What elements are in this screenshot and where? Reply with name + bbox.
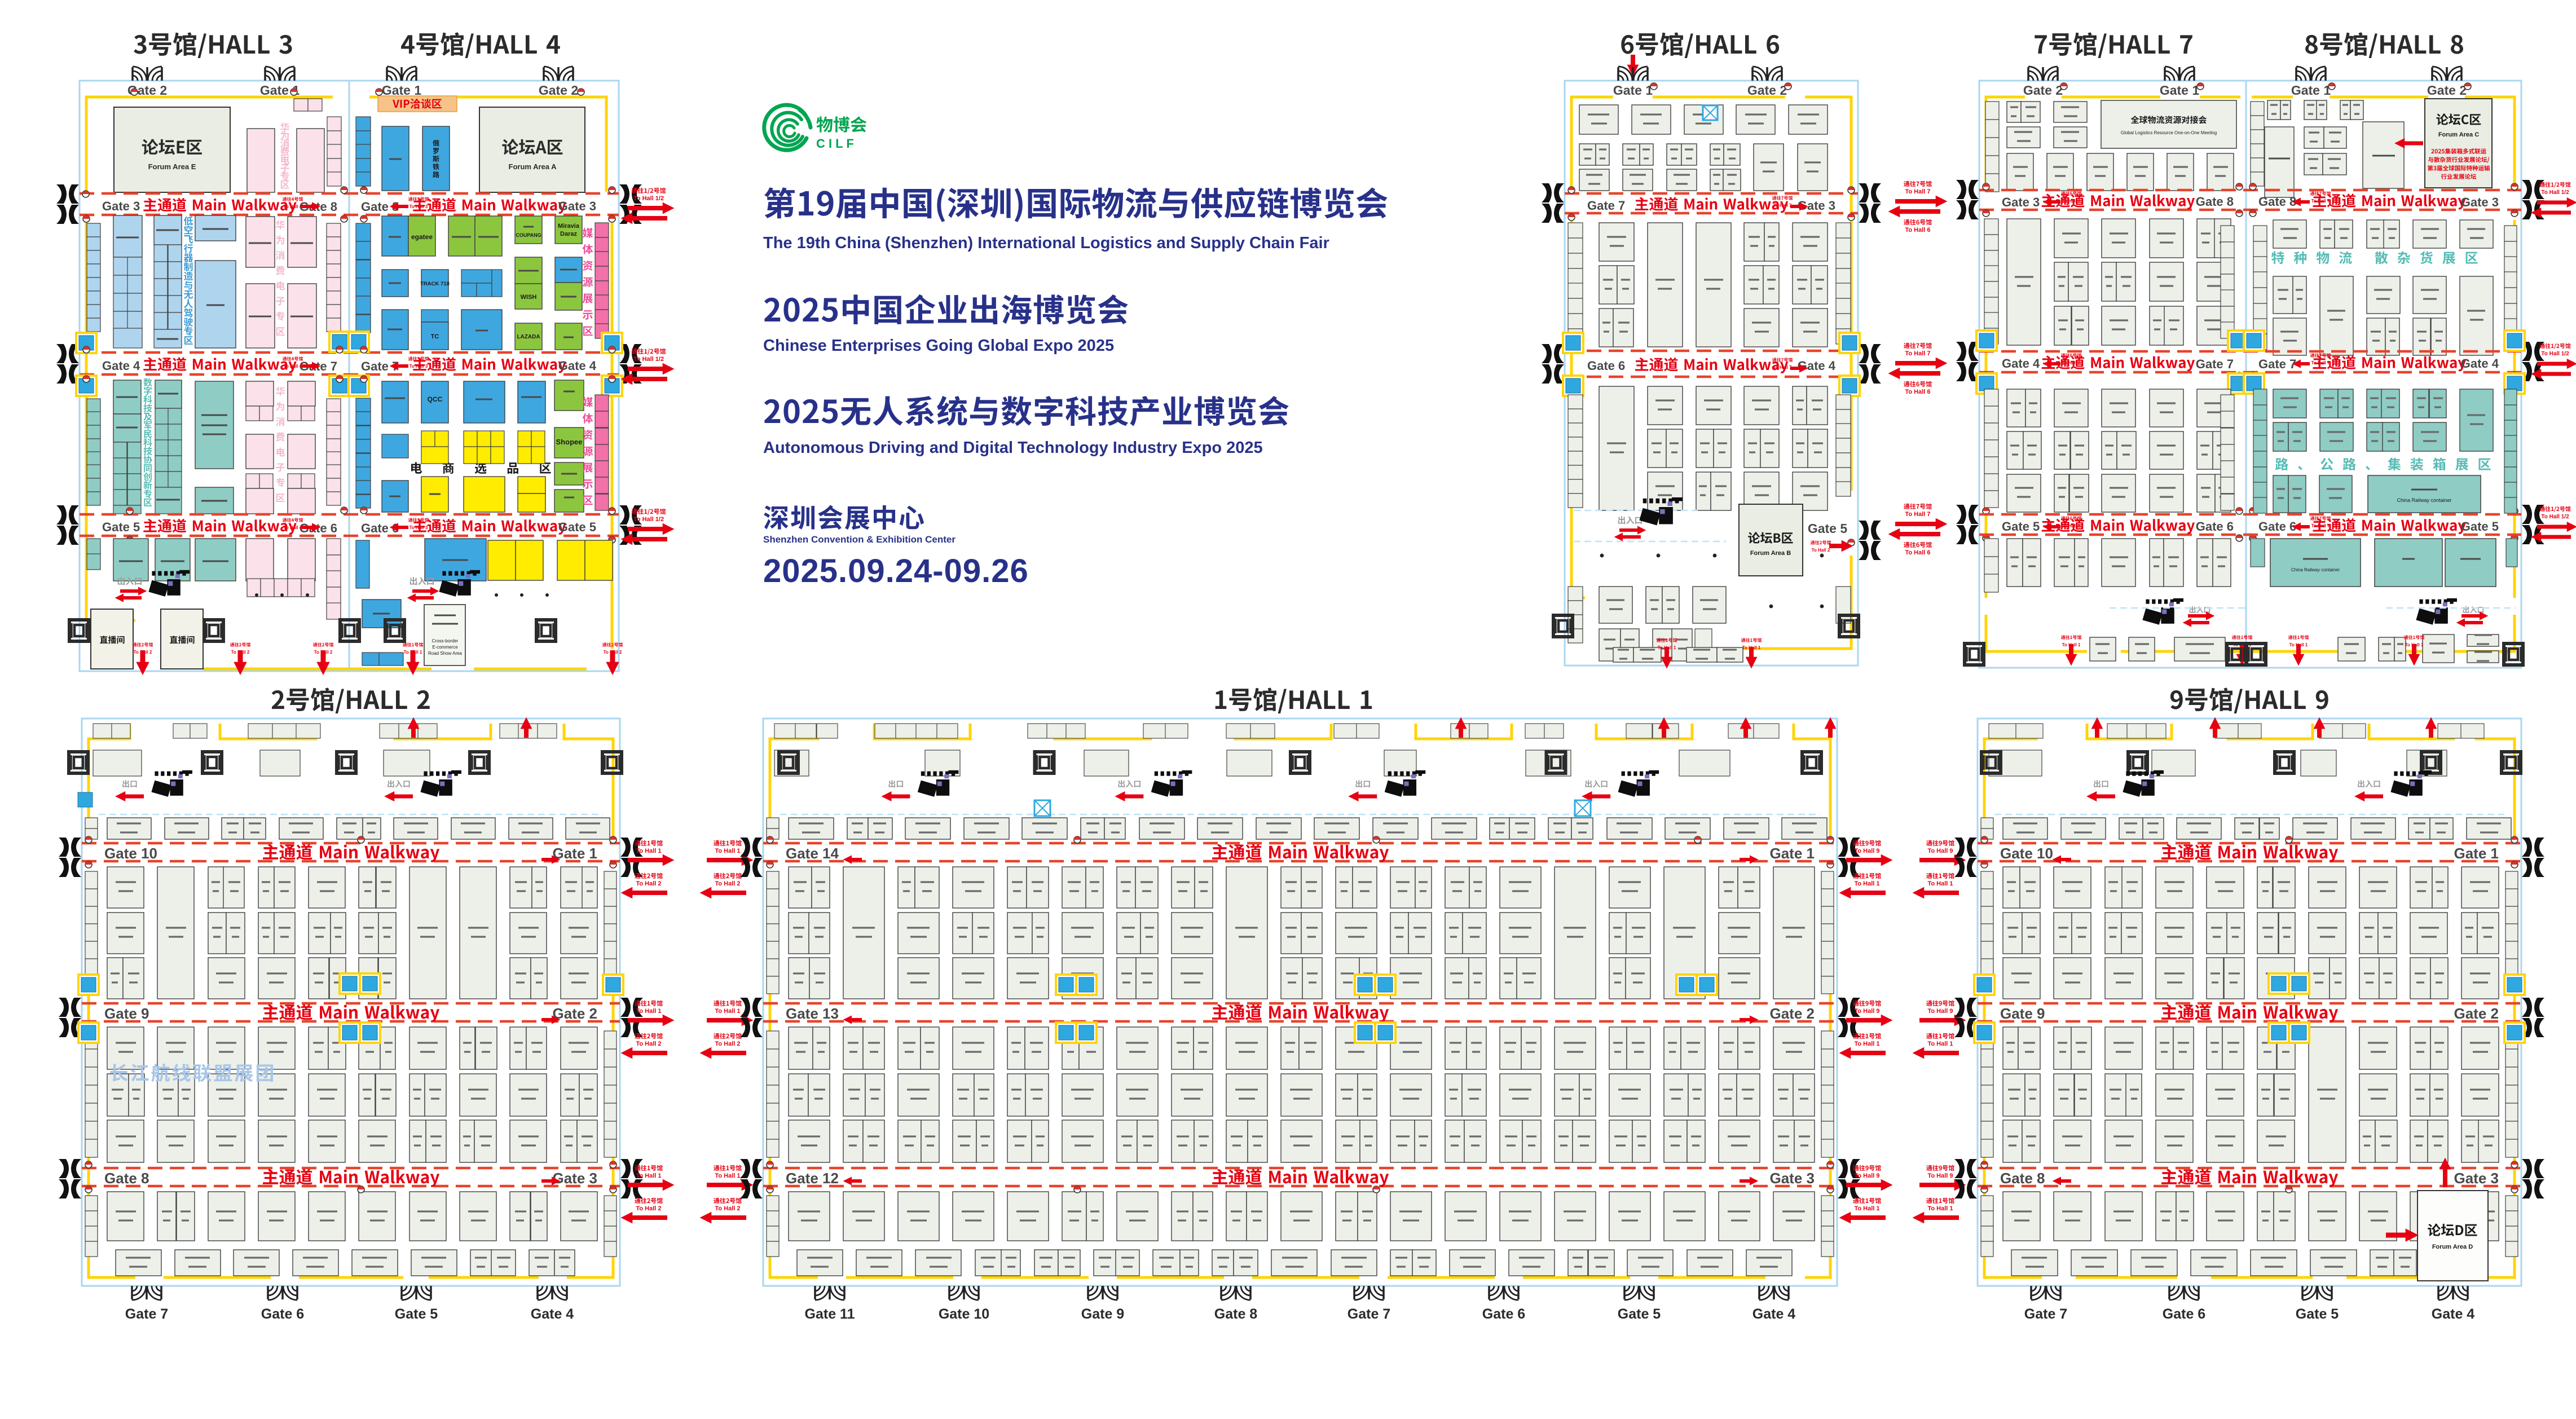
svg-text:To Hall 1/2: To Hall 1/2 [633, 356, 664, 363]
svg-text:Gate 8: Gate 8 [2196, 195, 2234, 209]
svg-text:To Hall 1: To Hall 1 [2289, 642, 2308, 647]
svg-text:C I L F: C I L F [816, 136, 854, 151]
svg-text:Gate 3: Gate 3 [1770, 1170, 1815, 1187]
svg-text:Gate 3: Gate 3 [2454, 1170, 2499, 1187]
svg-text:Gate 5: Gate 5 [102, 520, 140, 534]
svg-text:To Hall 7: To Hall 7 [1905, 350, 1930, 357]
svg-text:WISH: WISH [521, 294, 537, 301]
svg-text:To Hall 9: To Hall 9 [1854, 1008, 1879, 1015]
svg-text:TRACK 718: TRACK 718 [420, 281, 450, 287]
svg-text:Gate 3: Gate 3 [102, 199, 140, 213]
svg-text:Forum Area A: Forum Area A [509, 162, 557, 171]
svg-text:Gate 4: Gate 4 [2432, 1306, 2475, 1322]
svg-text:Gate 8: Gate 8 [1214, 1306, 1258, 1322]
svg-text:Gate 5: Gate 5 [1808, 521, 1848, 536]
svg-text:Gate 6: Gate 6 [361, 521, 399, 535]
svg-text:TC: TC [431, 333, 439, 340]
svg-text:Gate 4: Gate 4 [102, 359, 140, 373]
svg-text:Gate 6: Gate 6 [2163, 1306, 2205, 1322]
svg-text:Gate 2: Gate 2 [553, 1005, 598, 1022]
svg-text:To Hall 7: To Hall 7 [1905, 188, 1930, 195]
svg-text:Gate 13: Gate 13 [786, 1005, 839, 1022]
svg-text:Gate 2: Gate 2 [539, 83, 578, 98]
svg-text:Gate 1: Gate 1 [1770, 845, 1815, 862]
svg-text:Forum Area E: Forum Area E [148, 162, 196, 171]
svg-text:To Hall 1/2: To Hall 1/2 [2541, 190, 2569, 196]
svg-text:Gate 1: Gate 1 [382, 83, 422, 98]
svg-text:Gate 7: Gate 7 [125, 1306, 168, 1322]
svg-text:Gate 2: Gate 2 [2427, 83, 2467, 98]
svg-text:Gate 4: Gate 4 [2002, 356, 2040, 371]
svg-text:Gate 9: Gate 9 [2000, 1005, 2045, 1022]
svg-text:Gate 8: Gate 8 [104, 1170, 149, 1187]
svg-text:Forum Area C: Forum Area C [2438, 131, 2479, 138]
svg-text:To Hall 7: To Hall 7 [2311, 199, 2330, 204]
svg-text:Gate 3: Gate 3 [558, 199, 596, 213]
svg-text:Gate 4: Gate 4 [558, 359, 597, 373]
svg-text:To Hall 2: To Hall 2 [636, 880, 661, 887]
svg-text:China Railway container: China Railway container [2291, 567, 2340, 572]
svg-text:Gate 4: Gate 4 [531, 1306, 574, 1322]
svg-text:To Hall 9: To Hall 9 [1854, 848, 1879, 854]
svg-text:Gate 9: Gate 9 [104, 1005, 149, 1022]
svg-text:To Hall 2: To Hall 2 [231, 650, 250, 655]
svg-text:Shenzhen Convention & Exhibiti: Shenzhen Convention & Exhibition Center [763, 534, 955, 545]
svg-text:Gate 5: Gate 5 [395, 1306, 438, 1322]
svg-text:Gate 1: Gate 1 [553, 845, 598, 862]
svg-text:To Hall 4: To Hall 4 [284, 204, 302, 209]
svg-text:Gate 1: Gate 1 [2454, 845, 2499, 862]
svg-text:Forum Area B: Forum Area B [1750, 550, 1791, 557]
svg-text:Gate 12: Gate 12 [786, 1170, 839, 1187]
svg-text:Gate 6: Gate 6 [2258, 519, 2296, 534]
svg-text:To Hall 4: To Hall 4 [284, 525, 302, 530]
svg-text:To Hall 9: To Hall 9 [1927, 1008, 1953, 1015]
svg-text:Gate 2: Gate 2 [2454, 1005, 2499, 1022]
svg-text:Chinese Enterprises Going Glob: Chinese Enterprises Going Global Expo 20… [763, 337, 1114, 355]
svg-text:To Hall 1/2: To Hall 1/2 [633, 195, 664, 202]
svg-text:Road Show Area: Road Show Area [428, 651, 463, 656]
svg-text:To Hall 1: To Hall 1 [1854, 880, 1879, 887]
svg-text:Miravia: Miravia [558, 223, 580, 230]
svg-text:Gate 3: Gate 3 [1798, 199, 1835, 213]
svg-text:Forum Area D: Forum Area D [2432, 1244, 2473, 1250]
svg-text:To Hall 6: To Hall 6 [1905, 549, 1930, 556]
svg-text:Gate 5: Gate 5 [2296, 1306, 2339, 1322]
svg-text:Gate 7: Gate 7 [1348, 1306, 1390, 1322]
svg-text:QCC: QCC [428, 395, 443, 403]
svg-text:To Hall 9: To Hall 9 [1854, 1173, 1879, 1179]
svg-text:To Hall 2: To Hall 2 [715, 1205, 740, 1212]
svg-text:To Hall 3: To Hall 3 [409, 525, 428, 530]
svg-text:To Hall 1: To Hall 1 [1927, 1205, 1953, 1212]
svg-text:To Hall 1: To Hall 1 [1742, 645, 1761, 650]
svg-text:Gate 11: Gate 11 [805, 1306, 855, 1322]
svg-text:Gate 6: Gate 6 [1482, 1306, 1525, 1322]
svg-text:Gate 9: Gate 9 [1081, 1306, 1124, 1322]
svg-text:To Hall 1/2: To Hall 1/2 [633, 516, 664, 523]
svg-text:To Hall 1: To Hall 1 [636, 1173, 661, 1179]
svg-text:Gate 8: Gate 8 [2000, 1170, 2045, 1187]
svg-text:Gate 8: Gate 8 [361, 200, 399, 214]
svg-text:Autonomous Driving and Digital: Autonomous Driving and Digital Technolog… [763, 439, 1263, 457]
svg-text:To Hall 2: To Hall 2 [314, 650, 333, 655]
svg-text:To Hall 9: To Hall 9 [1927, 848, 1953, 854]
svg-text:Gate 3: Gate 3 [553, 1170, 598, 1187]
svg-text:To Hall 6: To Hall 6 [2062, 523, 2081, 528]
svg-text:To Hall 1: To Hall 1 [1927, 1041, 1953, 1047]
svg-text:Gate 10: Gate 10 [939, 1306, 989, 1322]
svg-text:To Hall 7: To Hall 7 [1773, 365, 1792, 370]
svg-text:Gate 10: Gate 10 [2000, 845, 2053, 862]
svg-text:To Hall 2: To Hall 2 [1812, 548, 1830, 553]
svg-text:To Hall 2: To Hall 2 [134, 650, 152, 655]
svg-text:Gate 7: Gate 7 [1587, 199, 1625, 213]
svg-text:To Hall 1: To Hall 1 [636, 848, 661, 854]
svg-text:To Hall 1: To Hall 1 [1854, 1041, 1879, 1047]
svg-text:Gate 7: Gate 7 [361, 359, 399, 373]
svg-text:Gate 3: Gate 3 [2002, 195, 2040, 209]
svg-text:Gate 1: Gate 1 [2291, 83, 2331, 98]
svg-text:To Hall 6: To Hall 6 [1905, 389, 1930, 395]
svg-text:To Hall 1: To Hall 1 [715, 1008, 740, 1015]
svg-text:Gate 5: Gate 5 [558, 520, 596, 534]
svg-text:COUPANG: COUPANG [516, 232, 541, 238]
svg-text:Shopee: Shopee [556, 438, 583, 446]
svg-text:Gate 3: Gate 3 [2461, 195, 2499, 209]
svg-text:To Hall 1: To Hall 1 [1658, 645, 1676, 650]
svg-text:To Hall 1: To Hall 1 [636, 1008, 661, 1015]
svg-text:Gate 4: Gate 4 [2461, 356, 2499, 371]
svg-text:E-commerce: E-commerce [432, 645, 458, 650]
svg-text:To Hall 9: To Hall 9 [1927, 1173, 1953, 1179]
svg-text:Gate 2: Gate 2 [1747, 83, 1787, 98]
svg-text:To Hall 6: To Hall 6 [2062, 199, 2081, 204]
svg-text:Gate 1: Gate 1 [1613, 83, 1653, 98]
svg-text:egatee: egatee [411, 233, 433, 241]
svg-text:Gate 2: Gate 2 [1770, 1005, 1815, 1022]
svg-text:To Hall 7: To Hall 7 [2311, 523, 2330, 528]
svg-text:To Hall 2: To Hall 2 [604, 650, 622, 655]
svg-text:To Hall 1: To Hall 1 [2405, 642, 2424, 647]
svg-text:To Hall 1: To Hall 1 [1854, 1205, 1879, 1212]
svg-text:Gate 4: Gate 4 [1752, 1306, 1796, 1322]
svg-text:To Hall 2: To Hall 2 [636, 1205, 661, 1212]
svg-text:Gate 7: Gate 7 [2024, 1306, 2067, 1322]
svg-text:LAZADA: LAZADA [517, 334, 540, 340]
svg-text:To Hall 3: To Hall 3 [409, 204, 428, 209]
svg-text:To Hall 1: To Hall 1 [404, 650, 422, 655]
svg-text:China Railway container: China Railway container [2397, 497, 2451, 503]
svg-text:Gate 6: Gate 6 [2196, 519, 2234, 534]
svg-text:To Hall 1: To Hall 1 [715, 1173, 740, 1179]
svg-text:Gate 7: Gate 7 [2258, 357, 2296, 371]
svg-text:To Hall 1: To Hall 1 [715, 848, 740, 854]
svg-text:To Hall 2: To Hall 2 [715, 880, 740, 887]
svg-text:Global Logistics Resource One-: Global Logistics Resource One-on-One Mee… [2121, 130, 2217, 135]
svg-text:Gate 1: Gate 1 [2160, 83, 2200, 98]
svg-text:Gate 5: Gate 5 [1618, 1306, 1661, 1322]
svg-text:Gate 5: Gate 5 [2461, 519, 2499, 534]
svg-text:To Hall 3: To Hall 3 [409, 364, 428, 369]
svg-text:To Hall 6: To Hall 6 [1905, 227, 1930, 233]
svg-text:To Hall 7: To Hall 7 [2311, 360, 2330, 365]
svg-text:Daraz: Daraz [560, 231, 577, 237]
svg-text:Gate 10: Gate 10 [104, 845, 157, 862]
svg-text:To Hall 7: To Hall 7 [1905, 511, 1930, 518]
svg-text:The 19th China (Shenzhen) Inte: The 19th China (Shenzhen) International … [763, 234, 1329, 252]
svg-text:To Hall 1: To Hall 1 [2062, 642, 2081, 647]
svg-text:Gate 2: Gate 2 [2023, 83, 2063, 98]
svg-text:Gate 6: Gate 6 [261, 1306, 304, 1322]
svg-text:To Hall 6: To Hall 6 [2062, 360, 2081, 365]
svg-text:Gate 6: Gate 6 [1587, 359, 1625, 373]
svg-text:Gate 14: Gate 14 [786, 845, 839, 862]
svg-text:To Hall 1: To Hall 1 [1927, 880, 1953, 887]
svg-text:To Hall 1/2: To Hall 1/2 [2541, 514, 2569, 520]
svg-text:Cross-border: Cross-border [432, 638, 459, 644]
svg-text:Gate 4: Gate 4 [1798, 359, 1836, 373]
svg-text:To Hall 2: To Hall 2 [636, 1041, 661, 1047]
svg-text:Gate 5: Gate 5 [2002, 519, 2040, 534]
svg-text:Gate 8: Gate 8 [2258, 195, 2296, 209]
svg-text:To Hall 4: To Hall 4 [284, 364, 302, 369]
svg-text:To Hall 1/2: To Hall 1/2 [2541, 351, 2569, 357]
svg-text:To Hall 7: To Hall 7 [1773, 203, 1792, 208]
svg-text:To Hall 2: To Hall 2 [715, 1041, 740, 1047]
svg-text:Gate 7: Gate 7 [2196, 357, 2234, 371]
svg-text:2025.09.24-09.26: 2025.09.24-09.26 [763, 553, 1029, 589]
